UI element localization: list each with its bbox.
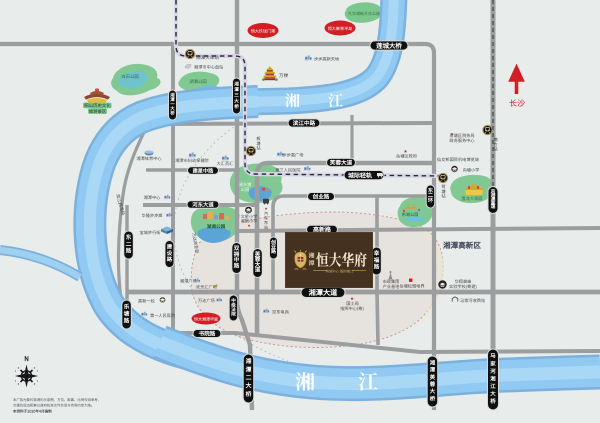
svg-text:岳塘松雅地界: 岳塘松雅地界 (399, 284, 425, 290)
svg-text:本资料于2020年4月编制: 本资料于2020年4月编制 (13, 409, 52, 415)
svg-text:路: 路 (167, 255, 173, 263)
svg-text:湘: 湘 (285, 90, 300, 111)
svg-text:N: N (24, 354, 29, 363)
svg-text:东湖公园: 东湖公园 (402, 212, 419, 218)
svg-text:桥: 桥 (170, 110, 175, 116)
svg-text:桥: 桥 (246, 389, 252, 398)
svg-text:湘潭火车站: 湘潭火车站 (196, 55, 219, 61)
svg-text:马家河收费站: 马家河收费站 (460, 298, 485, 304)
svg-text:院: 院 (231, 310, 236, 317)
svg-text:实验学校(筹建): 实验学校(筹建) (449, 284, 478, 290)
svg-text:路: 路 (126, 247, 132, 255)
svg-text:滨江中路: 滨江中路 (293, 119, 316, 127)
svg-text:江: 江 (328, 90, 343, 111)
svg-text:指挥中心(筹): 指挥中心(筹) (340, 306, 364, 312)
svg-text:桥: 桥 (234, 104, 239, 110)
svg-text:向塘小学: 向塘小学 (463, 168, 480, 174)
svg-text:湘潭市中心血站: 湘潭市中心血站 (194, 65, 223, 71)
svg-text:产业基地: 产业基地 (383, 284, 401, 290)
svg-text:创业路: 创业路 (312, 193, 330, 201)
svg-text:潭: 潭 (309, 258, 315, 267)
svg-text:盘龙大观园: 盘龙大观园 (462, 196, 483, 202)
svg-text:建星中路: 建星中路 (193, 167, 215, 174)
svg-text:恒大华府: 恒大华府 (316, 249, 367, 271)
svg-text:九华湖街文化公园: 九华湖街文化公园 (348, 11, 380, 17)
svg-text:湘钢小学: 湘钢小学 (241, 219, 258, 225)
svg-text:恒大湘潭华庭: 恒大湘潭华庭 (194, 316, 218, 322)
svg-text:交通及周边配套以政府批准文件及双方合同约定为准。: 交通及周边配套以政府批准文件及双方合同约定为准。 (13, 403, 94, 408)
svg-text:大汇百汇: 大汇百汇 (217, 161, 234, 167)
svg-text:路: 路 (374, 263, 380, 271)
svg-text:第三人民医院: 第三人民医院 (275, 168, 301, 174)
svg-text:城际轻轨: 城际轻轨 (348, 171, 372, 180)
svg-text:本广告为要约邀请的示意图，方位、距离、比例仅供参考，: 本广告为要约邀请的示意图，方位、距离、比例仅供参考， (13, 397, 101, 402)
svg-text:站: 站 (264, 225, 268, 231)
svg-text:湖湘公园: 湖湘公园 (207, 224, 226, 230)
svg-text:政务服务中心: 政务服务中心 (449, 138, 475, 144)
svg-text:站: 站 (493, 147, 497, 153)
svg-text:书院路: 书院路 (199, 330, 216, 338)
svg-text:旅游景区: 旅游景区 (89, 109, 107, 115)
svg-text:河东大道: 河东大道 (192, 200, 214, 208)
svg-text:恒大玖珑门第: 恒大玖珑门第 (251, 28, 276, 34)
svg-text:莲城大桥: 莲城大桥 (376, 41, 402, 50)
svg-text:万达广场: 万达广场 (198, 298, 215, 304)
svg-text:湘潭广场: 湘潭广场 (180, 279, 197, 285)
svg-text:站: 站 (256, 146, 260, 152)
svg-text:步步高新天地: 步步高新天地 (314, 57, 340, 63)
svg-text:万楼: 万楼 (279, 73, 289, 79)
svg-text:速: 速 (491, 203, 496, 210)
svg-text:岳塘区政府: 岳塘区政府 (396, 154, 417, 160)
svg-text:桥: 桥 (430, 394, 436, 402)
svg-text:长沙: 长沙 (509, 98, 525, 109)
svg-text:湖湘公园: 湖湘公园 (189, 79, 207, 85)
svg-text:京东电商: 京东电商 (272, 310, 289, 316)
svg-text:路: 路 (124, 316, 130, 324)
svg-text:站: 站 (441, 194, 445, 200)
svg-text:第一人民医院: 第一人民医院 (150, 313, 176, 319)
svg-text:白石公园: 白石公园 (121, 74, 139, 80)
svg-text:公园: 公园 (241, 187, 249, 193)
svg-text:湘潭体育中心: 湘潭体育中心 (136, 156, 162, 162)
svg-text:湘潭高新区: 湘潭高新区 (443, 240, 481, 251)
svg-text:步步高广场: 步步高广场 (283, 153, 304, 159)
svg-text:江: 江 (358, 366, 378, 395)
svg-text:芙蓉大道: 芙蓉大道 (329, 159, 353, 167)
svg-text:桥: 桥 (490, 397, 496, 405)
svg-text:宝城步行街: 宝城步行街 (140, 230, 161, 236)
svg-text:道: 道 (255, 266, 261, 274)
svg-text:两城中心 踞府瞰江: 两城中心 踞府瞰江 (325, 268, 354, 273)
svg-text:环: 环 (428, 197, 434, 204)
svg-text:湘潭中心: 湘潭中心 (144, 195, 162, 201)
svg-text:高新一校: 高新一校 (138, 299, 156, 305)
svg-text:恒大御景半岛: 恒大御景半岛 (328, 26, 353, 32)
svg-text:湘潭大道: 湘潭大道 (309, 288, 339, 298)
svg-text:湘: 湘 (295, 366, 315, 395)
svg-text:路: 路 (234, 261, 240, 269)
svg-text:华隆步步高: 华隆步步高 (142, 213, 163, 219)
svg-text:仙女邦国际机电博览城: 仙女邦国际机电博览城 (437, 157, 480, 163)
svg-text:湘潭市妇幼保健院: 湘潭市妇幼保健院 (175, 158, 209, 164)
